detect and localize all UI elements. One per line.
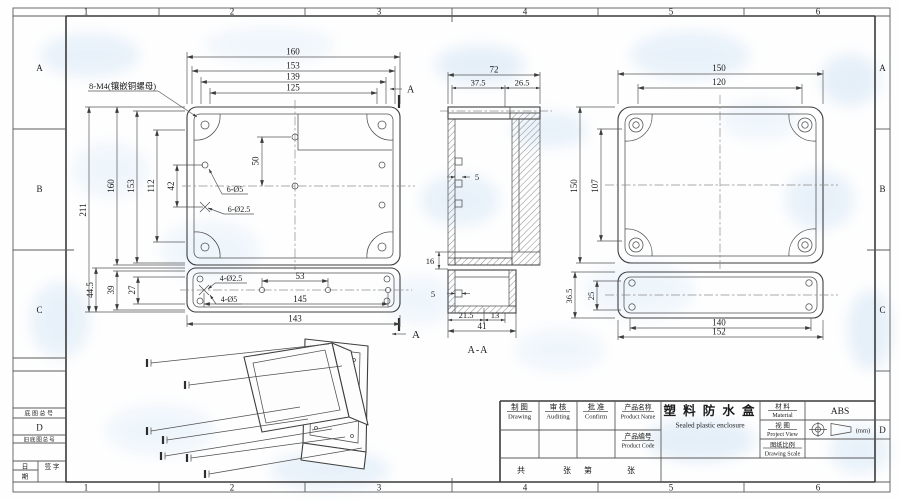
zone-bottom-3: 3 bbox=[377, 483, 382, 493]
auditing-label-cn: 审 核 bbox=[550, 402, 567, 412]
product-name-value-cn: 塑 料 防 水 盒 bbox=[663, 403, 756, 418]
confirm-label-cn: 批 准 bbox=[588, 402, 605, 412]
dim-125: 125 bbox=[286, 83, 300, 93]
dim-107: 107 bbox=[590, 179, 600, 193]
material-label-cn: 材 料 bbox=[775, 402, 790, 411]
cover-dimension-lines bbox=[96, 268, 400, 324]
dim-39: 39 bbox=[106, 285, 116, 295]
material-value: ABS bbox=[831, 407, 849, 417]
old-base-drawing-no-label: 旧底图总号 bbox=[24, 436, 56, 444]
zone-bottom-1: 1 bbox=[84, 483, 89, 493]
dim-21_5: 21.5 bbox=[459, 310, 474, 320]
label-4-d5: 4-Ø5 bbox=[221, 295, 237, 304]
zone-top-5: 5 bbox=[669, 7, 674, 17]
zone-left-a: A bbox=[36, 63, 43, 73]
product-code-label-cn: 产品编号 bbox=[624, 432, 651, 441]
left-margin-panel: 底图总号 旧底图总号 日 期 签 字 bbox=[13, 358, 66, 482]
zone-bottom-6: 6 bbox=[816, 483, 821, 493]
dim-160-left: 160 bbox=[106, 179, 116, 193]
date-label-bottom: 期 bbox=[22, 473, 29, 481]
zone-right-c: C bbox=[879, 305, 885, 315]
dim-143: 143 bbox=[288, 314, 302, 324]
zone-right-b: B bbox=[879, 184, 885, 194]
section-letter-a-top: A bbox=[407, 85, 415, 96]
auditing-label-en: Auditing bbox=[546, 414, 570, 421]
sheet-total-unit: 张 bbox=[563, 466, 571, 475]
zone-bottom-5: 5 bbox=[669, 483, 674, 493]
dim-152: 152 bbox=[712, 327, 726, 337]
dim-139: 139 bbox=[286, 72, 300, 82]
product-name-label-en: Product Name bbox=[621, 415, 656, 421]
date-label-top: 日 bbox=[22, 463, 29, 471]
dim-53: 53 bbox=[296, 271, 306, 281]
section-cover bbox=[448, 270, 516, 313]
dim-50: 50 bbox=[251, 156, 261, 166]
zone-left-d: D bbox=[36, 423, 43, 433]
zone-left-c: C bbox=[36, 305, 42, 315]
product-name-label-cn: 产品名称 bbox=[624, 403, 651, 412]
front-cover-view: 53 145 143 44.5 39 27 4-Ø2.5 4-Ø5 bbox=[85, 268, 412, 327]
confirm-label-en: Confirm bbox=[585, 414, 608, 421]
dim-42: 42 bbox=[166, 182, 176, 191]
sheet-no-label: 第 bbox=[584, 465, 592, 475]
dim-211: 211 bbox=[78, 203, 88, 216]
section-letter-a-bottom: A bbox=[412, 329, 420, 341]
dim-37_5: 37.5 bbox=[471, 78, 486, 88]
label-6-d5: 6-Ø5 bbox=[227, 185, 243, 194]
dim-16: 16 bbox=[426, 256, 435, 266]
zone-top-6: 6 bbox=[816, 7, 821, 17]
mounting-holes bbox=[200, 134, 385, 212]
sheet-no-unit: 张 bbox=[627, 466, 635, 475]
dim-160-top: 160 bbox=[286, 47, 300, 57]
note-8-m4: 8-M4(镶嵌铜螺母) bbox=[89, 81, 156, 91]
scale-label-en: Drawing Scale bbox=[765, 452, 801, 458]
product-name-value-en: Sealed plastic enclosure bbox=[675, 422, 744, 430]
zone-top-4: 4 bbox=[523, 7, 528, 17]
sheet-total-label: 共 bbox=[517, 466, 525, 475]
material-label-en: Material bbox=[772, 413, 793, 419]
scale-label-cn: 图纸比例 bbox=[770, 441, 795, 449]
zone-bottom-4: 4 bbox=[523, 483, 528, 493]
dim-150-top: 150 bbox=[712, 63, 726, 73]
signature-label: 签 字 bbox=[45, 462, 60, 471]
view-label-cn: 视 图 bbox=[775, 421, 790, 430]
dim-41: 41 bbox=[478, 321, 487, 331]
dim-150-left: 150 bbox=[569, 179, 579, 193]
zone-top-1: 1 bbox=[84, 7, 89, 17]
dim-153-left: 153 bbox=[126, 179, 136, 193]
dim-36_5: 36.5 bbox=[564, 289, 574, 304]
label-4-d2_5: 4-Ø2.5 bbox=[220, 274, 242, 283]
units-label: (mm) bbox=[856, 428, 870, 435]
base-drawing-no-label: 底图总号 bbox=[24, 410, 54, 418]
zone-bottom-2: 2 bbox=[230, 483, 235, 493]
drawing-label-en: Drawing bbox=[508, 414, 532, 421]
dim-5-lower: 5 bbox=[431, 289, 435, 299]
dim-112: 112 bbox=[146, 179, 156, 192]
dim-153-top: 153 bbox=[286, 61, 300, 71]
zone-top-2: 2 bbox=[230, 7, 235, 17]
engineering-drawing-sheet: 1 2 3 4 5 6 1 2 3 4 5 6 A B C D A B C D … bbox=[0, 0, 900, 500]
dim-5-upper: 5 bbox=[475, 172, 479, 182]
dim-44_5: 44.5 bbox=[85, 282, 95, 298]
dim-26_5: 26.5 bbox=[515, 78, 530, 88]
product-code-label-en: Product Code bbox=[622, 444, 655, 450]
zone-left-b: B bbox=[36, 184, 42, 194]
section-label-a-a: A-A bbox=[468, 345, 489, 356]
zone-right-d: D bbox=[879, 425, 886, 435]
label-6-d2_5: 6-Ø2.5 bbox=[228, 205, 250, 214]
dim-27: 27 bbox=[127, 285, 137, 295]
dim-145: 145 bbox=[293, 294, 307, 304]
dim-72: 72 bbox=[490, 65, 499, 75]
drawing-label-cn: 制 图 bbox=[511, 402, 528, 412]
dim-25: 25 bbox=[586, 292, 596, 301]
dim-13: 13 bbox=[491, 310, 500, 320]
view-label-en: Project View bbox=[767, 432, 799, 438]
zone-right-a: A bbox=[879, 63, 886, 73]
dim-120: 120 bbox=[712, 77, 726, 87]
zone-top-3: 3 bbox=[377, 7, 382, 17]
drawing-svg: 1 2 3 4 5 6 1 2 3 4 5 6 A B C D A B C D … bbox=[0, 0, 900, 500]
